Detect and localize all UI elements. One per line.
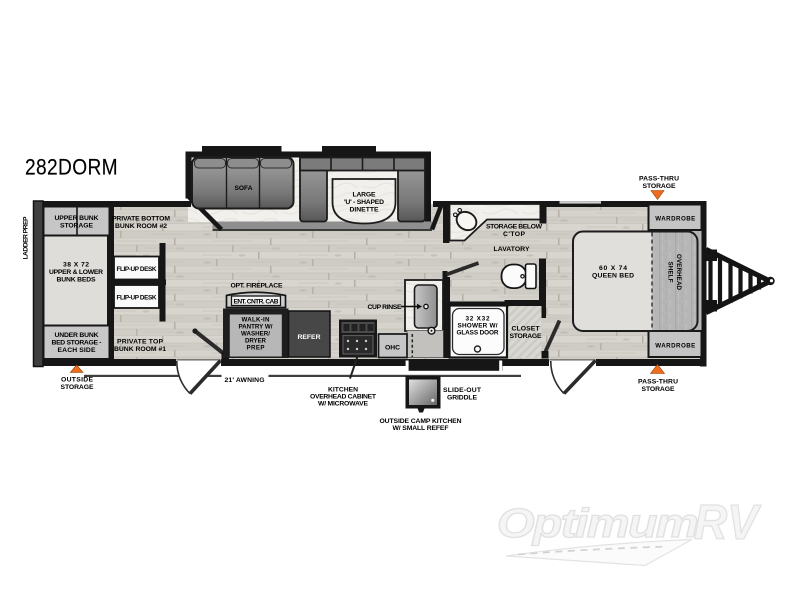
svg-text:UPPER BUNK: UPPER BUNK: [55, 215, 99, 222]
svg-text:RV: RV: [694, 496, 762, 550]
svg-text:BUNK BEDS: BUNK BEDS: [57, 277, 96, 284]
svg-text:BUNK ROOM #2: BUNK ROOM #2: [115, 223, 167, 230]
svg-text:PRIVATE BOTTOM: PRIVATE BOTTOM: [112, 216, 170, 223]
svg-text:32 X32: 32 X32: [466, 316, 490, 323]
svg-text:STORAGE: STORAGE: [61, 384, 94, 391]
svg-text:OPT. FIREPLACE: OPT. FIREPLACE: [231, 283, 283, 290]
svg-text:LAVATORY: LAVATORY: [494, 246, 530, 253]
svg-text:DRYER: DRYER: [245, 338, 267, 345]
svg-text:STORAGE: STORAGE: [510, 333, 542, 340]
svg-text:PASS-THRU: PASS-THRU: [638, 379, 678, 386]
svg-text:60 X 74: 60 X 74: [599, 265, 627, 272]
svg-text:PREP: PREP: [247, 345, 265, 352]
svg-text:GLASS DOOR: GLASS DOOR: [457, 330, 499, 337]
svg-text:PASS-THRU: PASS-THRU: [639, 176, 679, 183]
svg-text:'U' - SHAPED: 'U' - SHAPED: [344, 199, 384, 206]
svg-text:OHC: OHC: [385, 345, 400, 352]
svg-text:CUP RINSE: CUP RINSE: [368, 304, 402, 311]
svg-text:REFER: REFER: [298, 334, 321, 341]
svg-text:LARGE: LARGE: [353, 192, 376, 199]
svg-text:DINETTE: DINETTE: [350, 207, 379, 214]
svg-text:CLOSET: CLOSET: [512, 326, 541, 333]
svg-text:SHOWER W/: SHOWER W/: [458, 323, 498, 330]
svg-text:GRIDDLE: GRIDDLE: [447, 395, 477, 402]
svg-text:ENT. CNTR. CAB: ENT. CNTR. CAB: [234, 299, 279, 306]
svg-text:UPPER & LOWER: UPPER & LOWER: [49, 269, 103, 276]
svg-text:EACH SIDE: EACH SIDE: [58, 347, 96, 354]
svg-text:OUTSIDE CAMP KITCHEN: OUTSIDE CAMP KITCHEN: [380, 418, 462, 425]
svg-text:BUNK ROOM #1: BUNK ROOM #1: [114, 346, 166, 353]
svg-text:OUTSIDE: OUTSIDE: [61, 377, 93, 384]
svg-text:STORAGE: STORAGE: [643, 183, 676, 190]
svg-text:WARDROBE: WARDROBE: [655, 343, 695, 350]
svg-text:SOFA: SOFA: [235, 185, 253, 192]
svg-text:PANTRY W/: PANTRY W/: [239, 324, 273, 331]
svg-text:STORAGE: STORAGE: [642, 386, 675, 393]
svg-text:BED STORAGE -: BED STORAGE -: [52, 340, 102, 347]
svg-text:W/ SMALL REFEF: W/ SMALL REFEF: [393, 425, 449, 432]
svg-text:OVERHEAD CABINET: OVERHEAD CABINET: [310, 394, 377, 401]
svg-text:STORAGE: STORAGE: [60, 223, 93, 230]
svg-text:Optimum: Optimum: [497, 500, 697, 546]
svg-text:WASHER/: WASHER/: [241, 331, 270, 338]
svg-text:21' AWNING: 21' AWNING: [225, 377, 265, 384]
svg-text:W/ MICROWAVE: W/ MICROWAVE: [318, 401, 368, 408]
svg-text:FLIP-UP DESK: FLIP-UP DESK: [117, 295, 157, 302]
svg-text:C'TOP: C'TOP: [503, 231, 525, 238]
svg-text:LADDER PREP: LADDER PREP: [23, 216, 30, 259]
svg-text:SLIDE-OUT: SLIDE-OUT: [443, 387, 482, 394]
svg-text:38 X 72: 38 X 72: [63, 262, 89, 269]
svg-text:WARDROBE: WARDROBE: [655, 216, 695, 223]
svg-text:FLIP-UP DESK: FLIP-UP DESK: [117, 266, 157, 273]
svg-text:SHELF: SHELF: [667, 262, 674, 283]
svg-text:STORAGE BELOW: STORAGE BELOW: [486, 224, 543, 231]
svg-text:WALK-IN: WALK-IN: [242, 317, 271, 324]
svg-text:KITCHEN: KITCHEN: [328, 387, 358, 394]
svg-text:OVERHEAD: OVERHEAD: [675, 254, 682, 291]
svg-text:282DORM: 282DORM: [25, 155, 118, 180]
svg-text:QUEEN BED: QUEEN BED: [592, 273, 634, 280]
svg-text:UNDER BUNK: UNDER BUNK: [55, 332, 99, 339]
svg-text:PRIVATE TOP: PRIVATE TOP: [117, 339, 163, 346]
